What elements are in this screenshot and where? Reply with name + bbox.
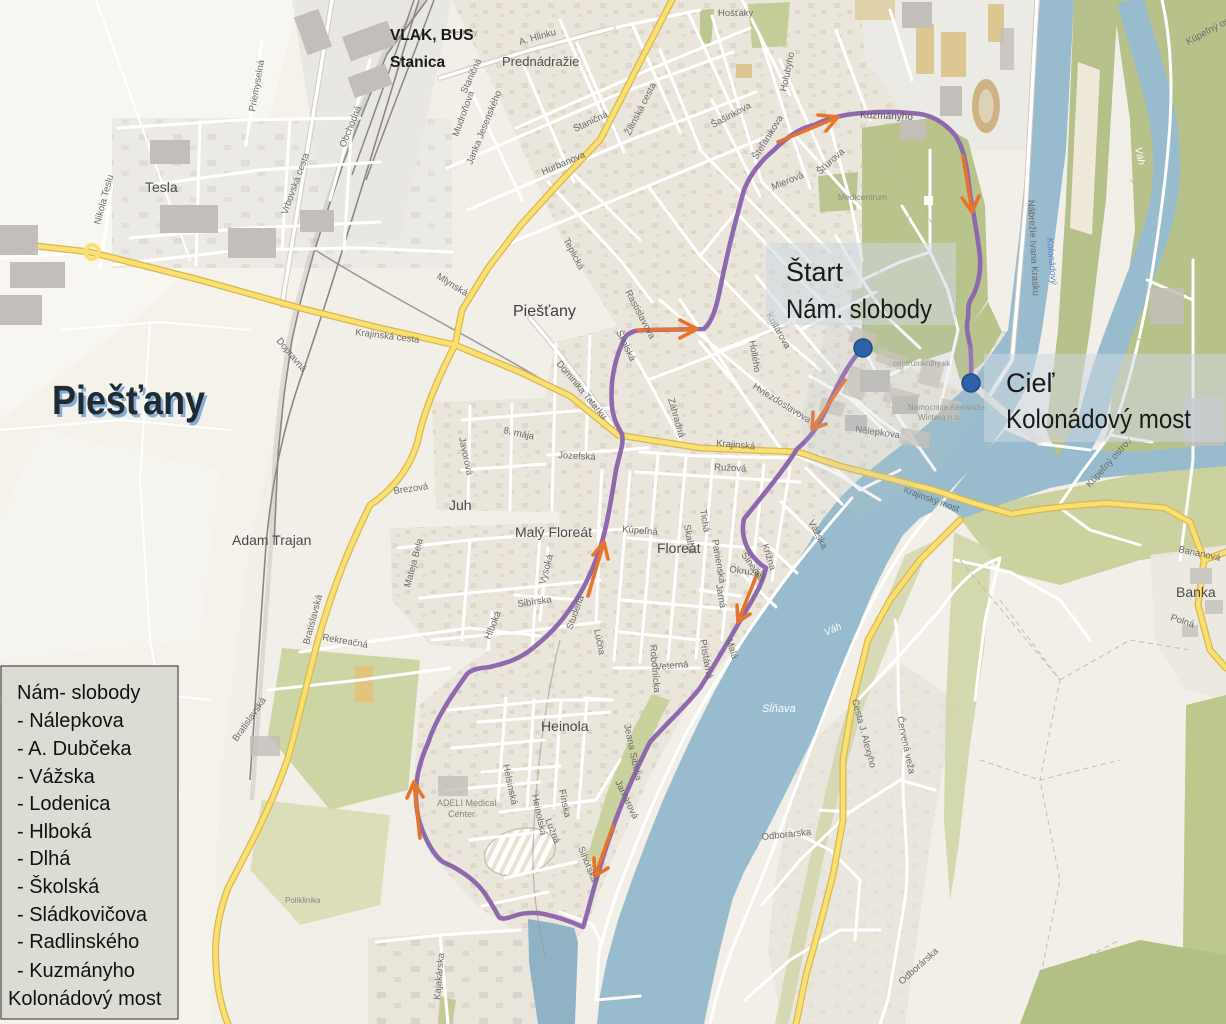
svg-text:- A. Dubčeka: - A. Dubčeka bbox=[17, 738, 132, 760]
svg-text:- Dlhá: - Dlhá bbox=[17, 848, 71, 870]
svg-text:- Radlinského: - Radlinského bbox=[17, 931, 139, 953]
svg-text:Tesla: Tesla bbox=[145, 179, 178, 195]
svg-text:Stanica: Stanica bbox=[390, 54, 446, 71]
svg-text:- Nálepkova: - Nálepkova bbox=[17, 710, 125, 732]
svg-text:Heinola: Heinola bbox=[541, 718, 589, 734]
svg-text:Štart: Štart bbox=[786, 256, 844, 287]
svg-text:Malý Floreát: Malý Floreát bbox=[515, 524, 592, 540]
svg-text:- Školská: - Školská bbox=[17, 875, 100, 898]
svg-text:Kolonádový most: Kolonádový most bbox=[8, 988, 162, 1010]
svg-text:Piešťany: Piešťany bbox=[52, 377, 205, 423]
svg-text:- Sládkovičova: - Sládkovičova bbox=[17, 904, 148, 926]
svg-text:Prednádražie: Prednádražie bbox=[502, 54, 579, 69]
svg-text:Kolonádový most: Kolonádový most bbox=[1006, 404, 1191, 434]
svg-text:Ružová: Ružová bbox=[714, 462, 747, 475]
svg-text:Juh: Juh bbox=[449, 497, 472, 513]
svg-text:- Kuzmányho: - Kuzmányho bbox=[17, 960, 135, 982]
svg-text:- Vážska: - Vážska bbox=[17, 766, 96, 788]
svg-text:Nám. slobody: Nám. slobody bbox=[786, 294, 932, 324]
svg-text:VLAK, BUS: VLAK, BUS bbox=[390, 27, 474, 44]
svg-text:Piešťany: Piešťany bbox=[513, 303, 576, 320]
svg-text:- Lodenica: - Lodenica bbox=[17, 793, 111, 815]
svg-text:Hošťáky: Hošťáky bbox=[718, 8, 753, 19]
svg-text:Banka: Banka bbox=[1176, 584, 1216, 600]
svg-text:Center: Center bbox=[448, 809, 475, 819]
svg-text:- Hlboká: - Hlboká bbox=[17, 821, 92, 843]
svg-text:ADELI Medical: ADELI Medical bbox=[437, 798, 497, 808]
svg-text:Kuzmányho: Kuzmányho bbox=[860, 110, 914, 123]
svg-text:Adam Trajan: Adam Trajan bbox=[232, 532, 311, 548]
svg-text:Cieľ: Cieľ bbox=[1006, 368, 1056, 398]
svg-text:Jozefská: Jozefská bbox=[558, 450, 597, 463]
svg-text:Sĺňava: Sĺňava bbox=[762, 702, 796, 715]
svg-text:Medicentrum: Medicentrum bbox=[838, 192, 887, 202]
svg-text:Poliklinika: Poliklinika bbox=[285, 896, 321, 905]
svg-text:Nám- slobody: Nám- slobody bbox=[17, 682, 140, 704]
